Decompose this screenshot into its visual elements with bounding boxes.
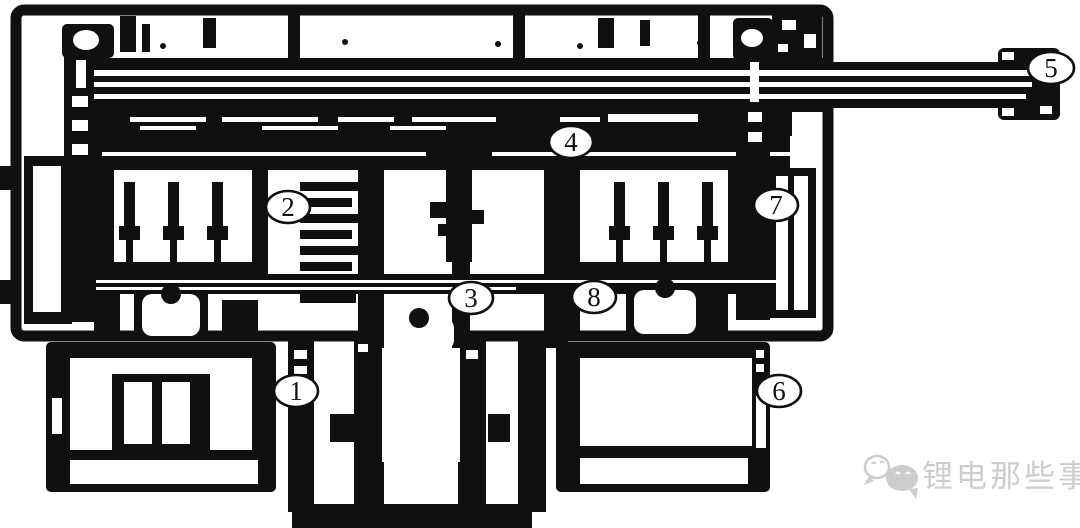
machine-body — [0, 10, 1060, 528]
callout-3-label: 3 — [464, 283, 478, 313]
callout-5-label: 5 — [1044, 53, 1058, 83]
callout-1-label: 1 — [289, 376, 303, 406]
watermark-text: 锂电那些事 — [922, 459, 1080, 495]
watermark: 锂电那些事 — [864, 456, 1080, 499]
callout-7: 7 — [754, 189, 798, 221]
plate-stack — [300, 166, 384, 348]
callout-8: 8 — [572, 281, 616, 313]
wechat-chat-bubbles-icon — [864, 456, 918, 499]
callout-1: 1 — [274, 375, 318, 407]
left-pin-module — [98, 170, 268, 278]
right-pin-module — [566, 170, 744, 278]
callout-2: 2 — [266, 191, 310, 223]
callout-3: 3 — [449, 282, 493, 314]
top-posts — [120, 12, 819, 64]
callout-8-label: 8 — [587, 282, 601, 312]
callout-4: 4 — [549, 126, 593, 158]
centre-base-plate — [292, 504, 532, 528]
callout-7-label: 7 — [769, 190, 783, 220]
callout-6: 6 — [757, 375, 801, 407]
callout-5: 5 — [1028, 52, 1074, 84]
callout-4-label: 4 — [564, 127, 578, 157]
callout-2-label: 2 — [281, 192, 295, 222]
machine-diagram-page: 1 2 3 4 5 6 7 8 — [0, 0, 1080, 528]
machine-cross-section-diagram: 1 2 3 4 5 6 7 8 — [0, 0, 1080, 528]
callout-6-label: 6 — [772, 376, 786, 406]
